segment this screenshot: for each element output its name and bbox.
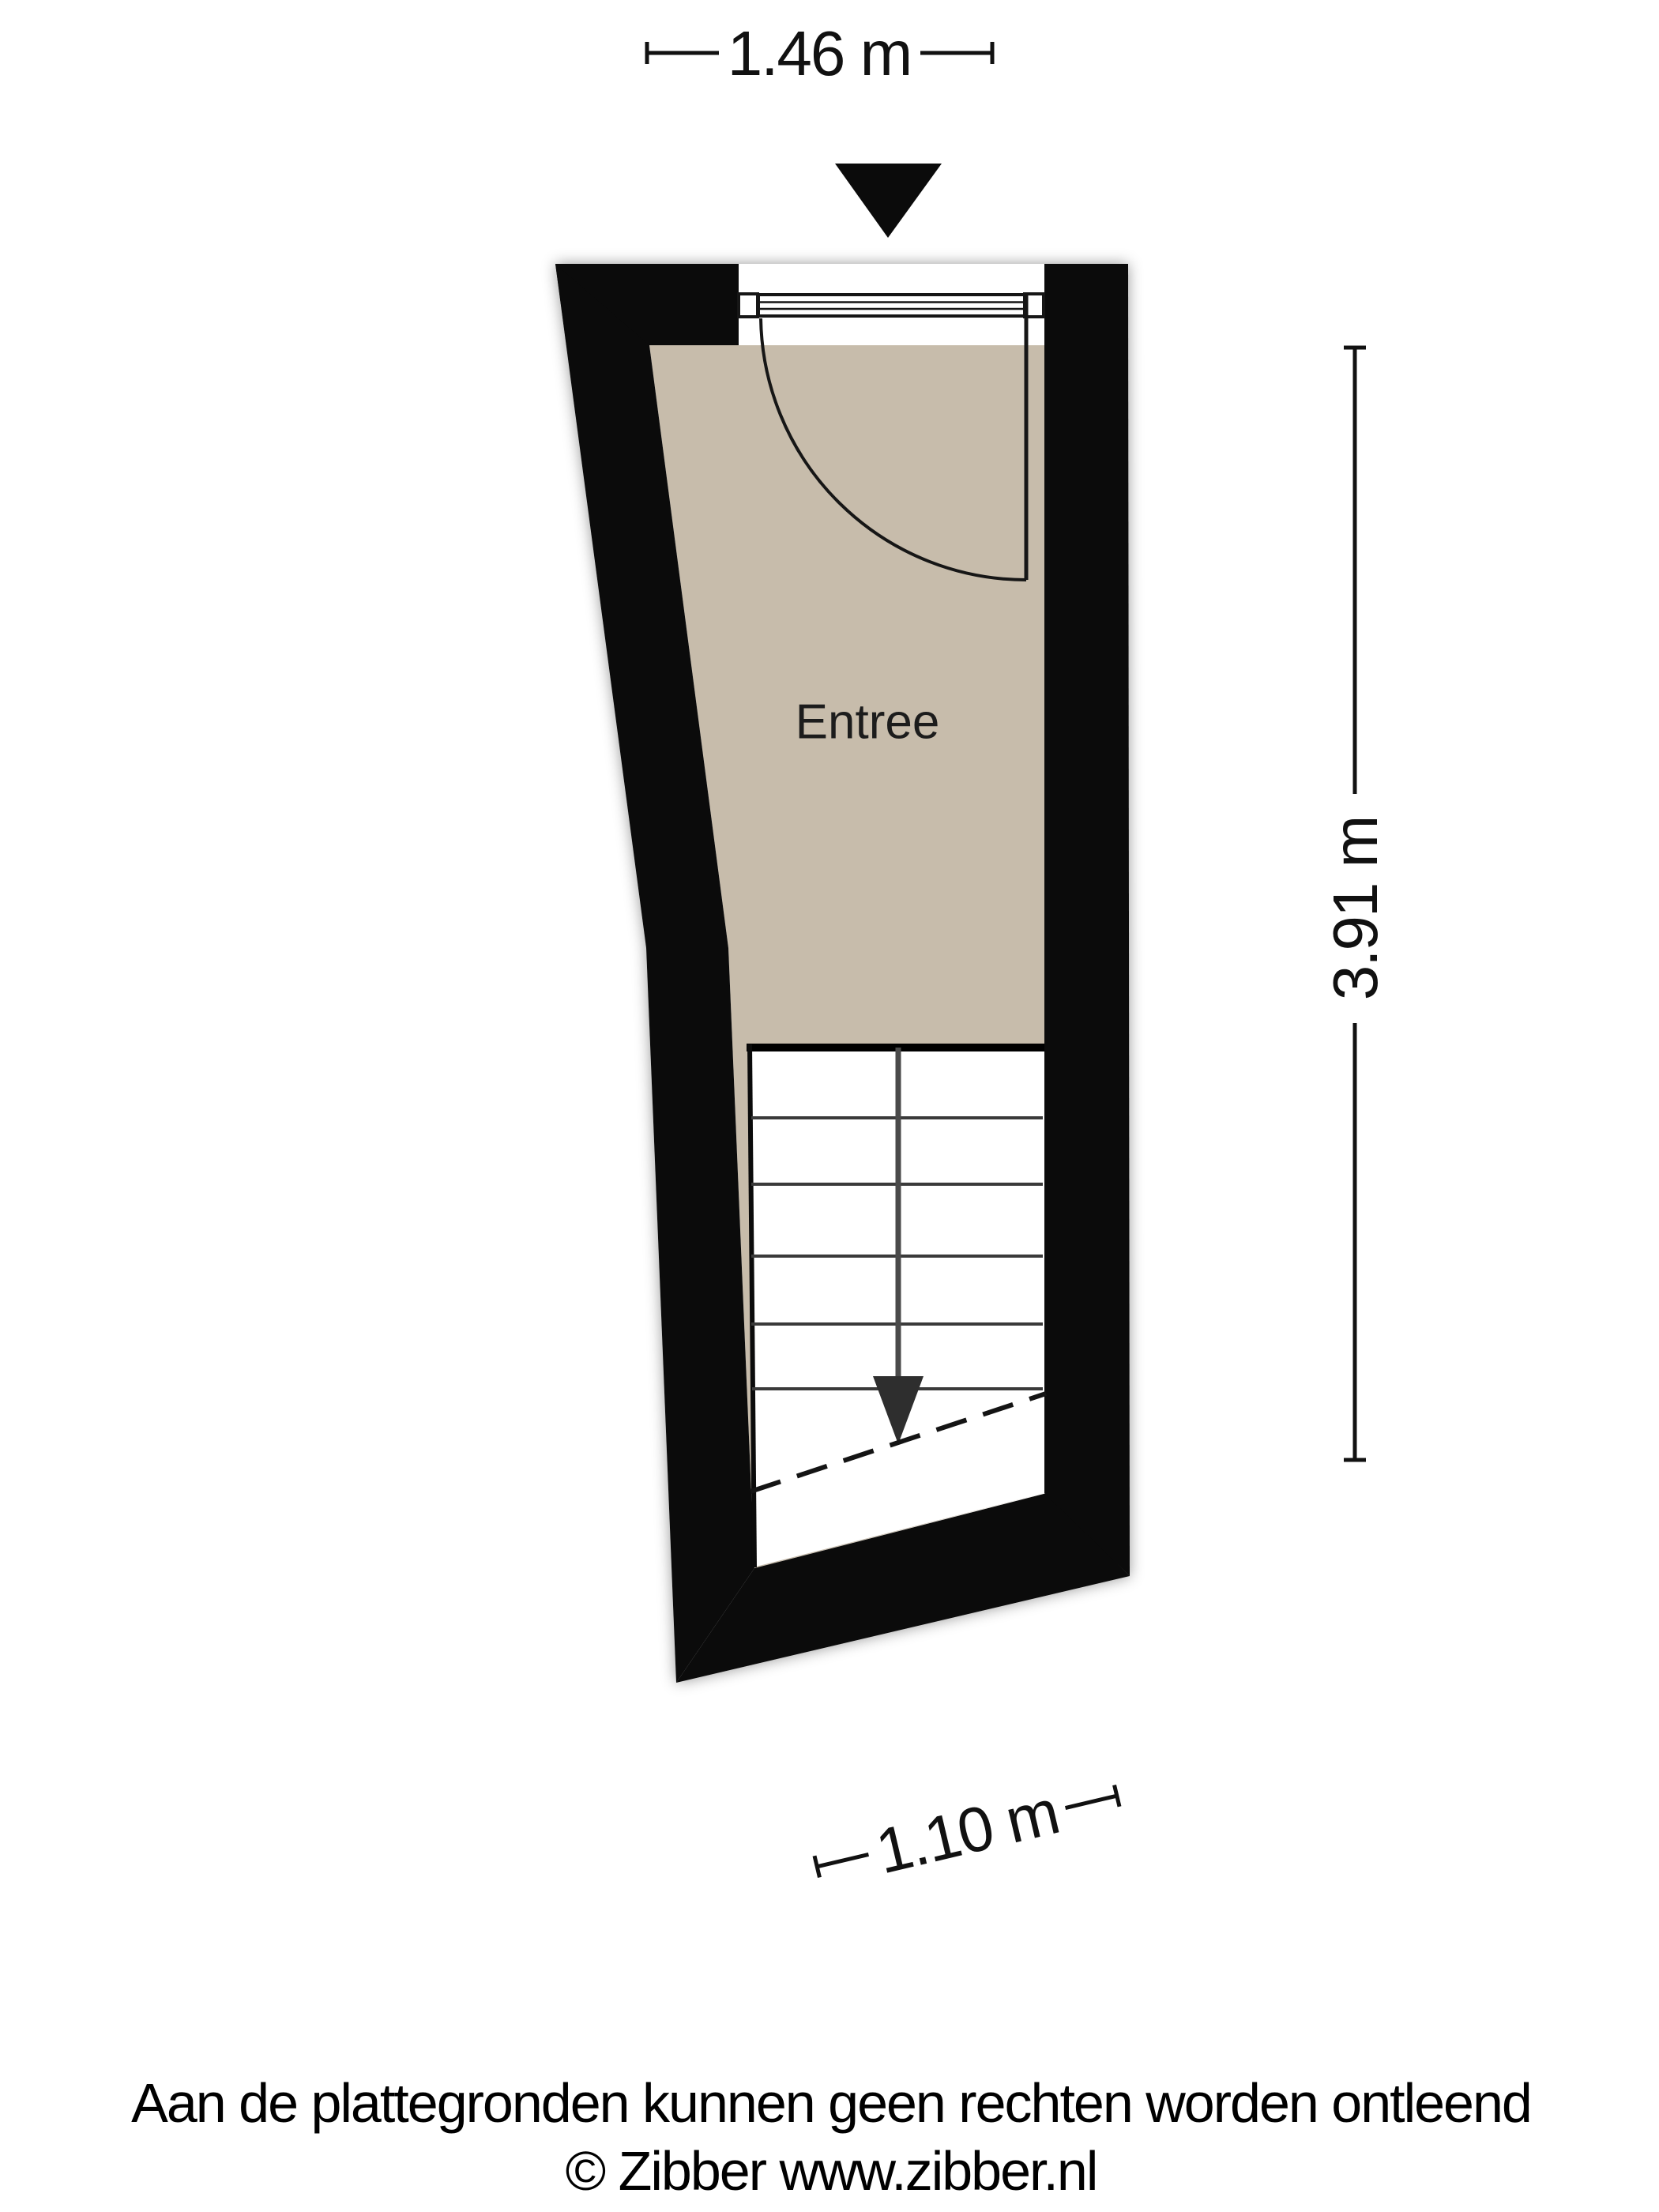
stairs [747, 1044, 1046, 1567]
footer-disclaimer: Aan de plattegronden kunnen geen rechten… [131, 2072, 1531, 2134]
room-label-entree: Entree [796, 695, 940, 750]
entrance-arrow-icon [835, 164, 942, 238]
dimension-top-label: 1.46 m [728, 18, 912, 88]
wall-right [1044, 264, 1130, 1576]
dimension-bottom-label: 1.10 m [870, 1776, 1065, 1887]
footer-copyright: © Zibber www.zibber.nl [566, 2140, 1097, 2202]
dimension-top: 1.46 m [647, 18, 992, 88]
dimension-right: 3.91 m [1320, 348, 1390, 1460]
floor-plan-canvas: Entree 1.46 m 3.91 m 1.10 m Aan de platt… [0, 0, 1659, 2212]
dimension-bottom: 1.10 m [809, 1762, 1125, 1901]
footer: Aan de plattegronden kunnen geen rechten… [131, 2072, 1531, 2202]
dimension-right-label: 3.91 m [1320, 817, 1390, 1001]
